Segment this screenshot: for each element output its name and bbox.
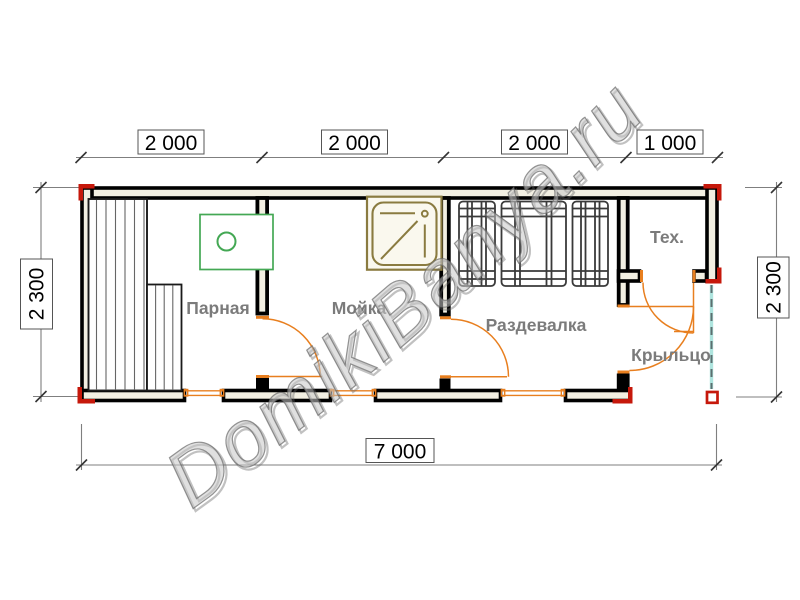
- svg-text:Тех.: Тех.: [650, 227, 684, 247]
- svg-text:2 300: 2 300: [26, 268, 49, 321]
- svg-text:2 000: 2 000: [328, 132, 381, 155]
- svg-text:Крыльцо: Крыльцо: [631, 345, 711, 365]
- svg-text:Парная: Парная: [186, 298, 250, 318]
- svg-text:2 300: 2 300: [763, 261, 786, 314]
- svg-text:Раздевалка: Раздевалка: [486, 315, 587, 335]
- svg-text:7 000: 7 000: [374, 441, 427, 464]
- svg-text:2 000: 2 000: [145, 132, 198, 155]
